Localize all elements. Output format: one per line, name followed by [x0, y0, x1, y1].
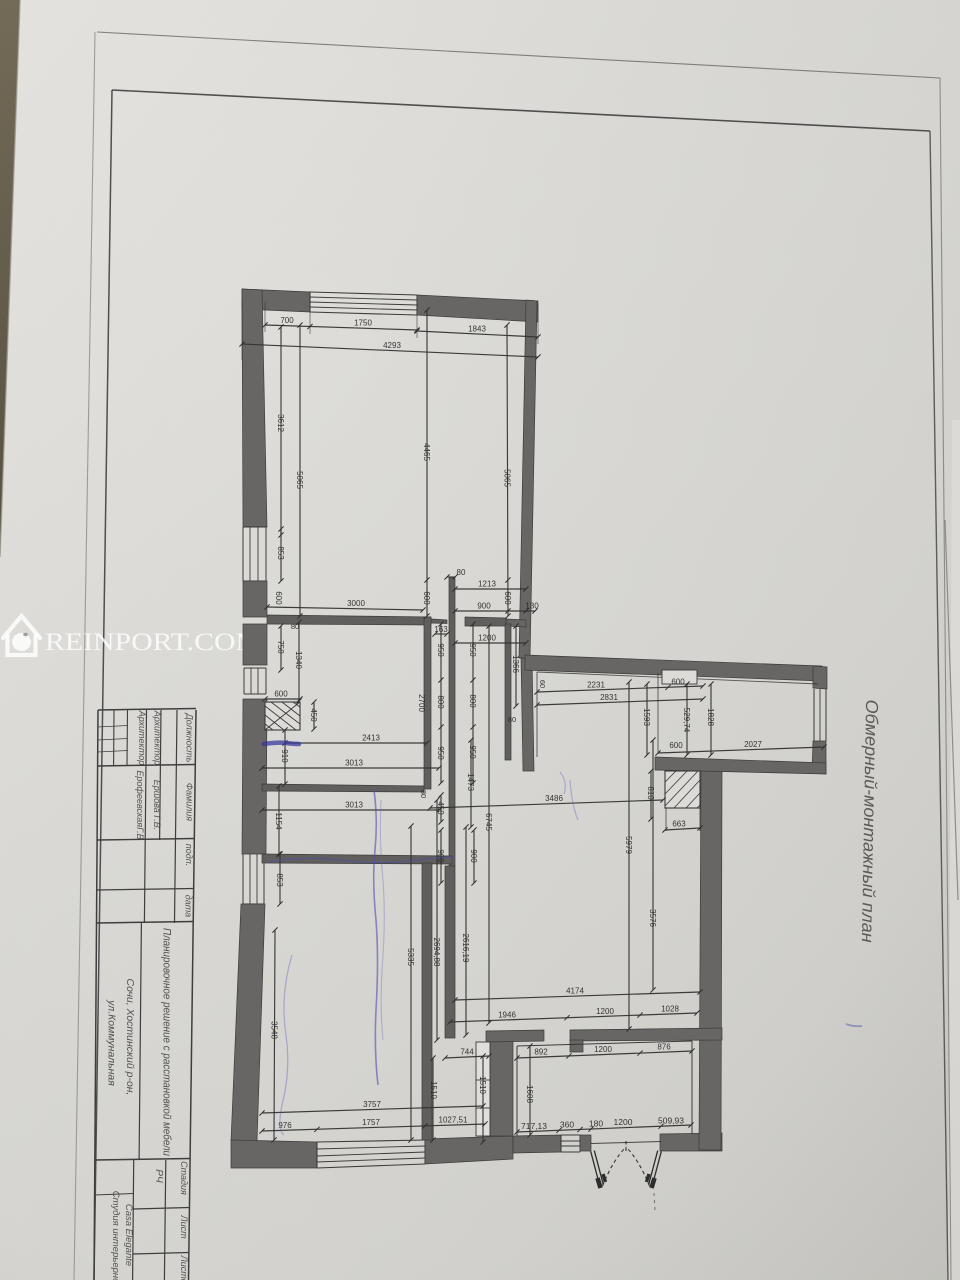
svg-text:5065: 5065 — [503, 469, 512, 487]
svg-text:1757: 1757 — [362, 1118, 380, 1127]
svg-text:Ершова Г.В.: Ершова Г.В. — [152, 780, 162, 831]
svg-text:1473: 1473 — [466, 773, 475, 791]
svg-text:3757: 3757 — [363, 1100, 381, 1109]
svg-text:5979: 5979 — [624, 836, 633, 854]
svg-text:744: 744 — [460, 1048, 474, 1057]
svg-text:130: 130 — [525, 602, 539, 611]
svg-text:600: 600 — [274, 591, 283, 605]
svg-text:910: 910 — [280, 749, 289, 763]
svg-text:2027: 2027 — [744, 740, 762, 749]
svg-text:810: 810 — [646, 786, 655, 800]
svg-text:1200: 1200 — [478, 634, 496, 643]
svg-text:180: 180 — [589, 1118, 603, 1128]
svg-text:Листов: Листов — [179, 1255, 189, 1280]
svg-text:1154: 1154 — [274, 812, 283, 830]
svg-text:900: 900 — [477, 602, 491, 611]
svg-text:2413: 2413 — [362, 734, 380, 743]
svg-text:REINPORT.COM: REINPORT.COM — [45, 629, 262, 656]
svg-text:6745: 6745 — [484, 813, 493, 831]
svg-text:1340: 1340 — [294, 651, 303, 669]
svg-text:1027,51: 1027,51 — [439, 1116, 468, 1125]
svg-text:80: 80 — [457, 568, 466, 577]
svg-text:1200: 1200 — [596, 1007, 614, 1016]
svg-text:663: 663 — [672, 820, 686, 829]
svg-text:Лист: Лист — [179, 1214, 189, 1239]
svg-text:450: 450 — [309, 708, 318, 722]
svg-text:1828: 1828 — [706, 708, 715, 726]
svg-text:80: 80 — [508, 715, 516, 724]
svg-text:5065: 5065 — [295, 471, 304, 489]
svg-text:Casa Elegante: Casa Elegante — [123, 1204, 134, 1266]
svg-text:2700: 2700 — [417, 694, 426, 712]
svg-text:4465: 4465 — [422, 443, 431, 461]
svg-text:Планировочное решение с расста: Планировочное решение с расстановкой меб… — [161, 928, 173, 1156]
svg-text:3486: 3486 — [545, 794, 563, 803]
svg-text:Обмерный-монтажный план: Обмерный-монтажный план — [858, 699, 882, 943]
svg-text:2694,88: 2694,88 — [432, 938, 441, 967]
svg-text:892: 892 — [534, 1048, 548, 1057]
svg-text:ЕрофеевскаяГ.В: ЕрофеевскаяГ.В — [135, 770, 145, 839]
svg-text:900: 900 — [469, 849, 478, 863]
svg-text:750: 750 — [276, 640, 285, 654]
svg-text:5335: 5335 — [406, 948, 415, 966]
svg-text:1510: 1510 — [429, 1081, 438, 1099]
svg-text:80: 80 — [419, 790, 428, 798]
svg-text:1608: 1608 — [525, 1085, 534, 1103]
svg-text:509,93: 509,93 — [658, 1115, 684, 1125]
svg-text:600: 600 — [671, 677, 685, 686]
svg-text:ул.Коммунальная: ул.Коммунальная — [106, 999, 118, 1086]
svg-text:800: 800 — [436, 695, 445, 709]
svg-text:1200: 1200 — [614, 1117, 633, 1127]
svg-text:РЧ: РЧ — [153, 1169, 164, 1183]
svg-text:1750: 1750 — [354, 319, 372, 328]
svg-text:1843: 1843 — [468, 325, 486, 334]
svg-text:60: 60 — [538, 680, 547, 688]
svg-text:подп.: подп. — [184, 844, 194, 866]
svg-text:360: 360 — [560, 1120, 574, 1130]
svg-text:4174: 4174 — [566, 987, 584, 996]
svg-text:Стадия: Стадия — [179, 1161, 189, 1195]
svg-text:950: 950 — [436, 746, 445, 760]
svg-text:2831: 2831 — [600, 693, 618, 702]
svg-text:3013: 3013 — [345, 759, 363, 768]
svg-text:1366: 1366 — [511, 655, 520, 673]
svg-text:2616,19: 2616,19 — [461, 934, 470, 963]
svg-text:717,13: 717,13 — [521, 1121, 547, 1131]
svg-text:Студия интерьерного д: Студия интерьерного д — [110, 1191, 121, 1280]
svg-text:Фамилия: Фамилия — [185, 783, 195, 821]
svg-text:950: 950 — [436, 643, 445, 657]
svg-text:853: 853 — [276, 546, 285, 560]
svg-text:1028: 1028 — [661, 1005, 679, 1014]
svg-text:3013: 3013 — [345, 801, 363, 810]
svg-text:600: 600 — [274, 690, 288, 699]
svg-text:800: 800 — [468, 694, 477, 708]
svg-text:3548: 3548 — [270, 1021, 279, 1039]
svg-text:600: 600 — [422, 591, 431, 605]
svg-text:1510: 1510 — [478, 1076, 487, 1094]
svg-text:950: 950 — [468, 745, 477, 759]
svg-text:3576: 3576 — [648, 909, 657, 927]
svg-text:Сочи, Хостинский р-он,: Сочи, Хостинский р-он, — [124, 979, 136, 1096]
svg-text:950: 950 — [468, 643, 477, 657]
svg-text:1593: 1593 — [642, 708, 651, 726]
svg-text:Должность: Должность — [185, 712, 195, 762]
svg-text:1200: 1200 — [594, 1045, 612, 1054]
svg-text:853: 853 — [275, 873, 284, 887]
svg-text:600: 600 — [503, 591, 512, 605]
svg-text:3612: 3612 — [276, 414, 285, 432]
svg-text:876: 876 — [657, 1043, 671, 1052]
svg-text:600: 600 — [669, 741, 683, 750]
svg-text:дата: дата — [184, 895, 194, 917]
svg-text:700: 700 — [280, 316, 294, 325]
svg-text:529,74: 529,74 — [682, 708, 691, 733]
svg-text:Архитектор: Архитектор — [153, 710, 163, 765]
svg-text:1946: 1946 — [498, 1010, 516, 1019]
svg-text:1213: 1213 — [478, 580, 496, 589]
svg-text:3000: 3000 — [347, 599, 365, 608]
svg-text:4293: 4293 — [383, 341, 401, 350]
svg-text:Архитектор: Архитектор — [137, 710, 147, 765]
svg-text:2231: 2231 — [587, 680, 605, 689]
